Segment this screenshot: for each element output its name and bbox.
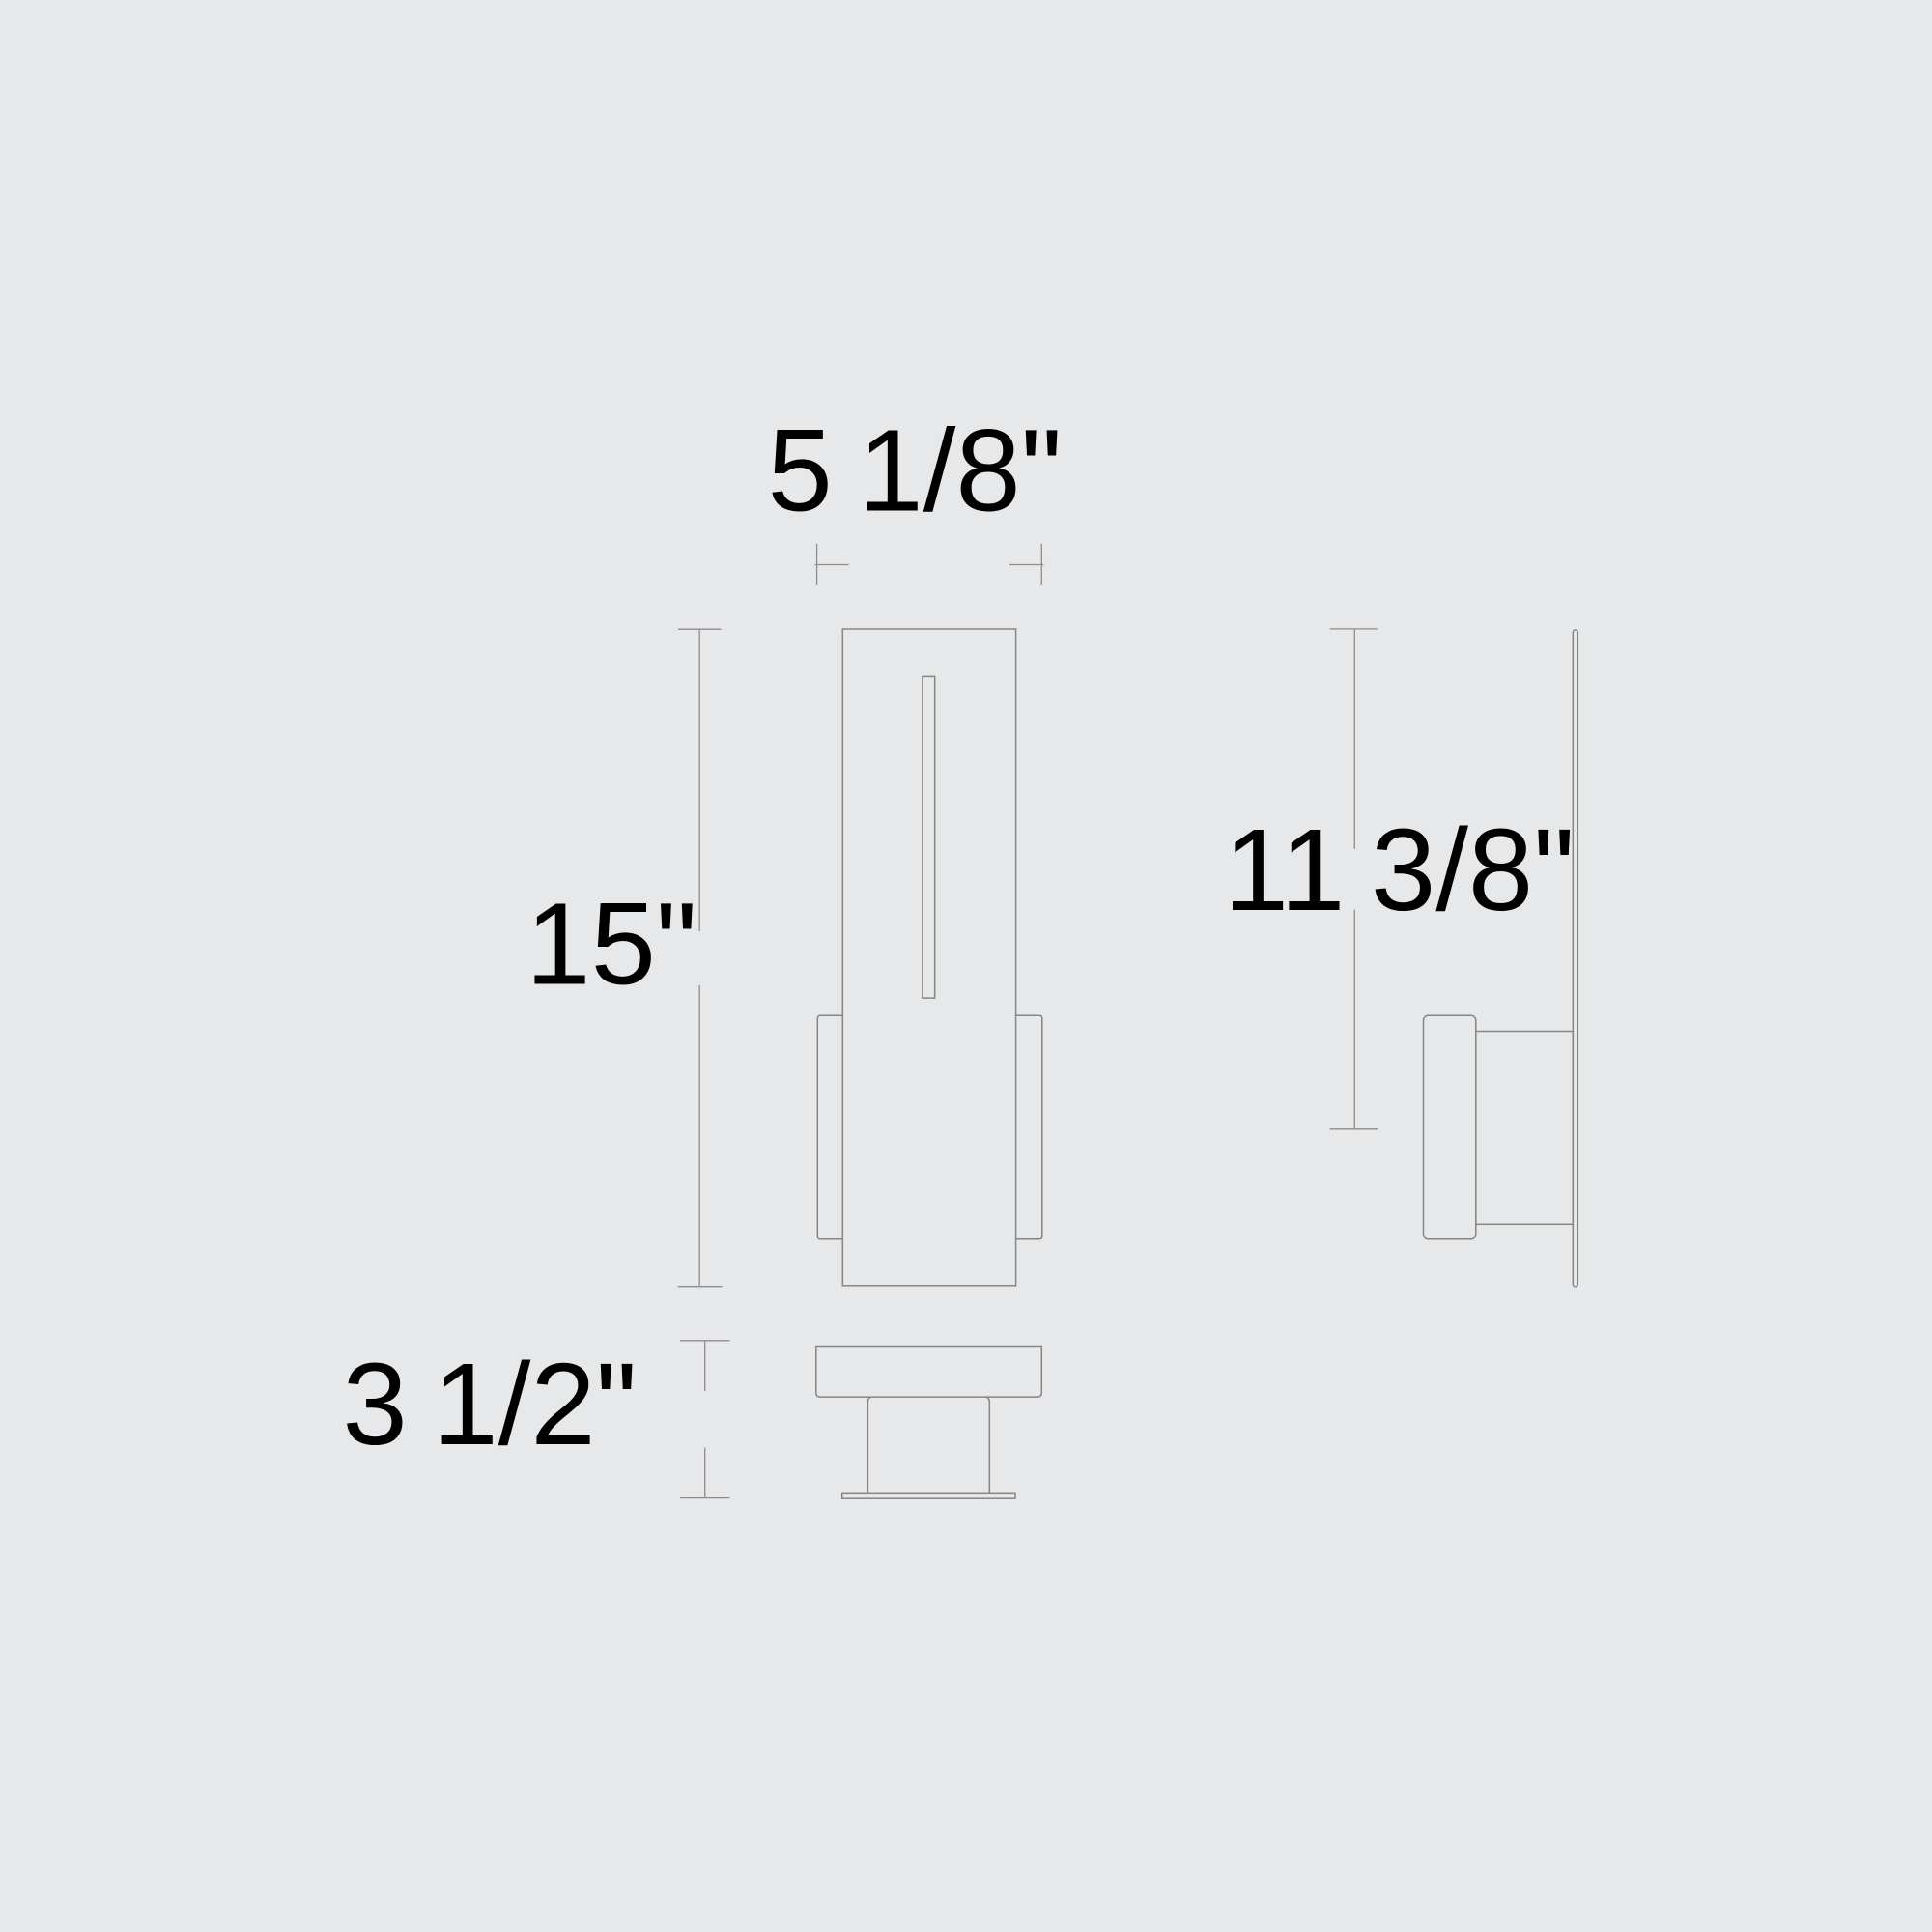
svg-text:3 1/2": 3 1/2": [343, 1338, 638, 1469]
svg-text:5 1/8": 5 1/8": [768, 404, 1063, 535]
svg-text:15": 15": [526, 877, 697, 1009]
svg-text:11 3/8": 11 3/8": [1224, 804, 1575, 935]
